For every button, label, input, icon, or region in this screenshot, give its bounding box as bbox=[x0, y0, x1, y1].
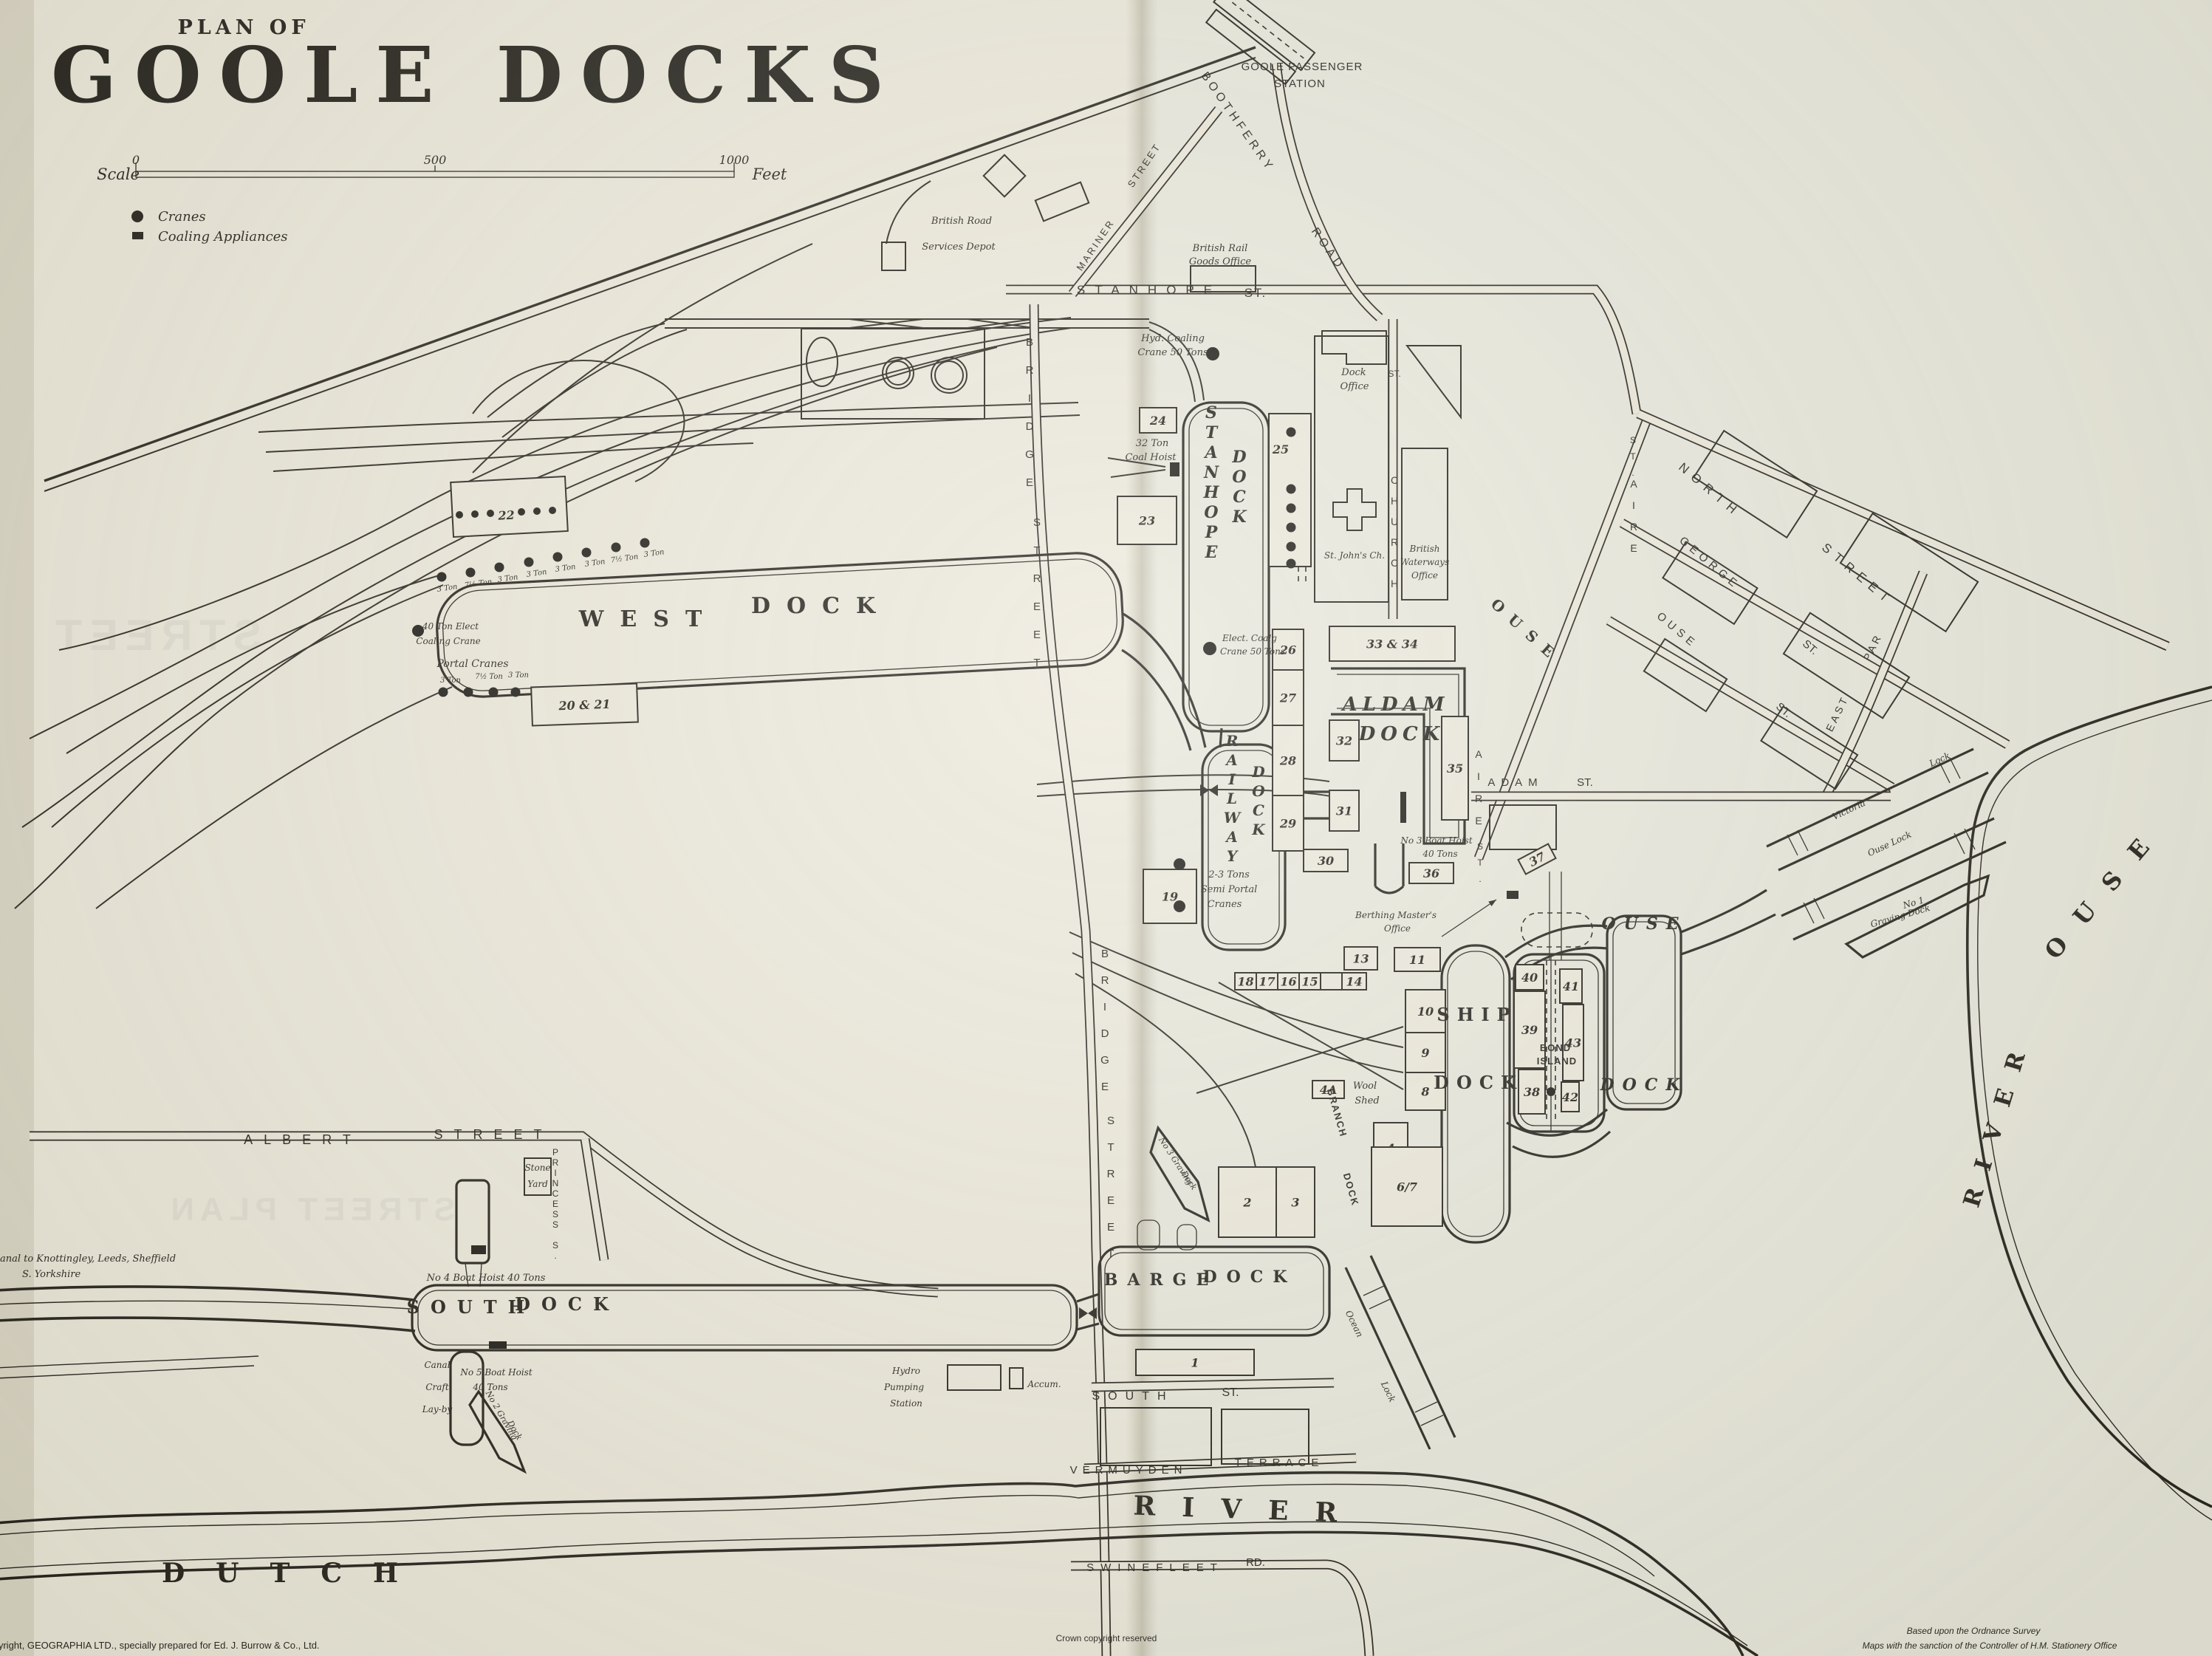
shed-28: 28 bbox=[1273, 725, 1304, 796]
shed-number: 27 bbox=[1279, 691, 1296, 705]
hydro-building bbox=[948, 1365, 1001, 1390]
crane-dot bbox=[553, 552, 563, 562]
brs-depot-building bbox=[882, 242, 905, 270]
label-ousedock-2: DOCK bbox=[1600, 1075, 1688, 1095]
coaling-square-icon bbox=[132, 232, 143, 239]
crane-dot bbox=[439, 688, 448, 697]
shed-number: 13 bbox=[1352, 952, 1369, 966]
label-stanhope-st: STANHOPE bbox=[1077, 283, 1222, 297]
crane-dot bbox=[1174, 858, 1185, 870]
crane-dot bbox=[511, 688, 521, 697]
shed-number: 32 bbox=[1336, 734, 1352, 748]
label-ton: 3 Ton bbox=[440, 677, 461, 685]
crane-dot bbox=[582, 548, 592, 558]
label-40ton-2: Coaling Crane bbox=[416, 636, 480, 646]
map-page: STREETSTREET PLAN bbox=[0, 0, 2212, 1656]
shed-9: 9 bbox=[1405, 1033, 1445, 1072]
scale-tick-1000: 1000 bbox=[719, 153, 750, 167]
label-albert-street: STREET bbox=[434, 1127, 552, 1142]
shed-number: 1 bbox=[1191, 1356, 1199, 1370]
crane-dot bbox=[1287, 559, 1296, 569]
legend-coaling: Coaling Appliances bbox=[158, 229, 288, 244]
label-bond: BOND bbox=[1540, 1042, 1571, 1053]
label-hydro-2: Pumping bbox=[883, 1382, 924, 1392]
shed-number: 39 bbox=[1521, 1023, 1538, 1037]
shed-3: 3 bbox=[1276, 1167, 1315, 1237]
shed-number: 22 bbox=[497, 508, 515, 523]
label-dock-office-1: Dock bbox=[1340, 367, 1366, 378]
berthing-masters-office bbox=[1507, 891, 1518, 899]
no4-boat-hoist bbox=[471, 1245, 486, 1254]
label-terrace: TERRACE bbox=[1235, 1457, 1324, 1469]
crane-dot bbox=[533, 507, 541, 515]
shed-1: 1 bbox=[1136, 1349, 1254, 1375]
crane-dot bbox=[437, 572, 447, 582]
label-layby-1: Canal bbox=[424, 1360, 450, 1370]
crane-dot bbox=[549, 507, 556, 514]
shed-number: 9 bbox=[1421, 1046, 1429, 1060]
street-south bbox=[1092, 1383, 1334, 1387]
shed-number: 38 bbox=[1524, 1085, 1540, 1099]
label-church-st2: ST. bbox=[1388, 369, 1400, 379]
crane-dot bbox=[1287, 542, 1296, 552]
scale-label: Scale bbox=[97, 165, 140, 183]
label-ton: 3 Ton bbox=[584, 558, 606, 569]
shed-number: 41 bbox=[1563, 979, 1579, 993]
label-no4-hoist: No 4 Boat Hoist 40 Tons bbox=[426, 1273, 546, 1284]
no5-boat-hoist bbox=[489, 1341, 507, 1349]
label-station: STATION bbox=[1274, 78, 1326, 90]
label-bridge-s2: STREET bbox=[1107, 1115, 1115, 1260]
shed-number: 2 bbox=[1242, 1196, 1251, 1210]
shed-number: 18 bbox=[1237, 975, 1253, 989]
label-south-st-1: SOUTH bbox=[1092, 1390, 1174, 1403]
coal-hoist-32ton bbox=[1170, 462, 1179, 476]
label-adam-st: ST. bbox=[1577, 776, 1593, 789]
shed-number: 35 bbox=[1447, 762, 1463, 776]
label-hyd-coaling-1: Hyd. Coaling bbox=[1140, 333, 1205, 344]
label-island: ISLAND bbox=[1537, 1055, 1577, 1067]
label-40ton-1: 40 Ton Elect bbox=[422, 621, 479, 632]
no3-boat-hoist bbox=[1400, 792, 1406, 823]
shed-17: 17 bbox=[1256, 973, 1278, 990]
shed-number: 6/7 bbox=[1397, 1180, 1417, 1194]
crane-dot bbox=[518, 508, 525, 516]
ghost-street-plan: STREET PLAN bbox=[165, 1191, 456, 1228]
label-no3-hoist-2: 40 Tons bbox=[1422, 849, 1457, 859]
scale-unit: Feet bbox=[752, 165, 787, 183]
shed-number: 29 bbox=[1279, 817, 1296, 831]
label-br-goods-1: British Rail bbox=[1192, 243, 1248, 254]
crane-dot bbox=[456, 511, 463, 519]
shed-number: 23 bbox=[1138, 514, 1155, 528]
shed-number: 17 bbox=[1259, 975, 1275, 989]
scale-tick-500: 500 bbox=[424, 153, 447, 167]
crane-dot bbox=[495, 563, 504, 572]
shed-13: 13 bbox=[1344, 947, 1377, 970]
label-os-2: Maps with the sanction of the Controller… bbox=[1863, 1640, 2117, 1651]
shed-30: 30 bbox=[1304, 849, 1348, 872]
shed-36: 36 bbox=[1409, 863, 1453, 883]
shed-24: 24 bbox=[1140, 408, 1177, 433]
shed-20 & 21: 20 & 21 bbox=[531, 684, 638, 726]
label-west-1: WEST bbox=[578, 606, 719, 632]
label-ousedock-1: OUSE bbox=[1601, 914, 1686, 934]
label-hydro-1: Hydro bbox=[891, 1366, 920, 1376]
canal-craft-layby bbox=[451, 1352, 483, 1445]
shed-number: 8 bbox=[1420, 1085, 1429, 1099]
shed-number: 24 bbox=[1149, 414, 1166, 428]
crane-dot bbox=[489, 688, 499, 697]
label-brs-2: Services Depot bbox=[922, 242, 996, 253]
canal-bank-1 bbox=[0, 1287, 414, 1300]
label-dock-office-2: Office bbox=[1340, 381, 1369, 392]
crane-dot bbox=[524, 558, 534, 567]
shed-number: 28 bbox=[1279, 754, 1296, 768]
map-title: GOOLE DOCKS bbox=[51, 30, 902, 120]
shed-15: 15 bbox=[1299, 973, 1321, 990]
label-layby-3: Lay-by bbox=[422, 1404, 453, 1414]
shed-23: 23 bbox=[1117, 496, 1177, 544]
label-wool-1: Wool bbox=[1353, 1081, 1377, 1092]
label-wool-2: Shed bbox=[1355, 1095, 1379, 1106]
label-canal-1: Canal to Knottingley, Leeds, Sheffield bbox=[0, 1253, 176, 1265]
label-west-2: DOCK bbox=[751, 593, 891, 619]
street-princess bbox=[585, 1139, 604, 1260]
label-ton: 3 Ton bbox=[555, 563, 576, 574]
label-semi-portal-1: 2-3 Tons bbox=[1208, 869, 1250, 880]
crane-dot bbox=[471, 510, 479, 518]
label-ton: 7½ Ton bbox=[475, 673, 503, 681]
label-hydro-3: Station bbox=[890, 1398, 922, 1409]
crane-dot bbox=[1203, 642, 1216, 655]
shed-35: 35 bbox=[1442, 716, 1468, 820]
shed-32: 32 bbox=[1329, 720, 1359, 761]
label-south-2: DOCK bbox=[515, 1293, 620, 1315]
label-stanhope-dock-2: DOCK bbox=[1231, 448, 1247, 527]
label-bw-3: Office bbox=[1411, 570, 1438, 581]
shed-number: 3 bbox=[1291, 1196, 1299, 1210]
shed-40: 40 bbox=[1516, 965, 1544, 990]
shed-29: 29 bbox=[1273, 796, 1304, 851]
label-barge-1: BARGE bbox=[1104, 1270, 1219, 1290]
legend-cranes: Cranes bbox=[158, 209, 206, 225]
shed-14: 14 bbox=[1342, 973, 1366, 990]
label-ship-2: DOCK bbox=[1434, 1072, 1524, 1093]
label-ton: 3 Ton bbox=[508, 671, 529, 680]
label-no5-hoist-1: No 5 Boat Hoist bbox=[459, 1367, 533, 1378]
shed-number: 31 bbox=[1336, 804, 1352, 818]
shed-33 & 34: 33 & 34 bbox=[1329, 626, 1455, 661]
goole-docks-map: STREETSTREET PLAN bbox=[0, 0, 2212, 1656]
label-barge-2: DOCK bbox=[1203, 1267, 1297, 1287]
crane-dot bbox=[1547, 1087, 1555, 1096]
scale-tick-0: 0 bbox=[132, 153, 140, 167]
crane-dot bbox=[466, 568, 476, 578]
label-semi-portal-3: Cranes bbox=[1208, 899, 1242, 910]
shed-number: 42 bbox=[1562, 1090, 1578, 1104]
label-dutch: DUTCH bbox=[162, 1558, 429, 1589]
label-albert: ALBERT bbox=[244, 1132, 362, 1147]
shed-number: 16 bbox=[1280, 975, 1296, 989]
label-ship-1: SHIP bbox=[1437, 1004, 1517, 1025]
label-elect-coalg-2: Crane 50 Tons bbox=[1220, 646, 1285, 657]
label-br-goods-2: Goods Office bbox=[1189, 256, 1251, 267]
label-crown: Crown copyright reserved bbox=[1056, 1633, 1157, 1643]
label-elect-coalg-1: Elect. Coalg bbox=[1222, 633, 1277, 643]
crane-dot bbox=[1287, 523, 1296, 533]
left-edge-shadow bbox=[0, 0, 34, 1656]
label-adam: ADAM bbox=[1487, 776, 1543, 789]
label-stone-1: Stone bbox=[524, 1163, 550, 1173]
tank-compound bbox=[801, 329, 985, 419]
label-no3-hoist-1: No 3 Boat Hoist bbox=[1400, 835, 1473, 846]
label-copyright: Copyright, GEOGRAPHIA LTD., specially pr… bbox=[0, 1640, 320, 1651]
crane-dot-icon bbox=[131, 211, 143, 222]
label-ton: 7½ Ton bbox=[610, 552, 639, 564]
shed-number: 10 bbox=[1417, 1005, 1434, 1019]
shed-blank bbox=[1321, 973, 1342, 990]
label-stanhope-dock-1: STANHOPE bbox=[1203, 403, 1220, 562]
shed-number: 19 bbox=[1162, 890, 1178, 904]
crane-dot bbox=[612, 543, 621, 552]
label-princess: PRINCESS S. bbox=[552, 1147, 559, 1261]
label-32ton-2: Coal Hoist bbox=[1125, 452, 1177, 463]
label-hyd-coaling-2: Crane 50 Tons bbox=[1137, 347, 1208, 358]
label-brs-1: British Road bbox=[931, 216, 992, 227]
shed-number: 36 bbox=[1423, 866, 1439, 880]
shed-number: 30 bbox=[1318, 854, 1334, 868]
shed-18: 18 bbox=[1235, 973, 1256, 990]
legend-symbols bbox=[131, 211, 143, 239]
label-32ton-1: 32 Ton bbox=[1136, 438, 1169, 449]
label-ton: 7½ Ton bbox=[464, 578, 493, 589]
shed-41: 41 bbox=[1560, 969, 1582, 1003]
label-layby-2: Craft bbox=[425, 1382, 449, 1392]
crane-dot bbox=[1287, 485, 1296, 494]
label-st-johns: St. John's Ch. bbox=[1324, 550, 1385, 561]
shed-6/7: 6/7 bbox=[1372, 1147, 1442, 1226]
shed-number: 20 & 21 bbox=[558, 697, 611, 713]
crane-dot bbox=[487, 510, 494, 517]
label-south-st-2: ST. bbox=[1222, 1386, 1239, 1399]
label-bw-2: Waterways bbox=[1400, 557, 1449, 567]
shed-number: 11 bbox=[1409, 953, 1425, 967]
label-berthing-1: Berthing Master's bbox=[1355, 910, 1437, 920]
swing-bridge-bowtie-2 bbox=[1079, 1307, 1097, 1319]
shed-number: 40 bbox=[1521, 971, 1538, 985]
label-accum: Accum. bbox=[1027, 1379, 1061, 1389]
label-swinefleet-rd: RD. bbox=[1246, 1556, 1265, 1569]
label-canal-2: S. Yorkshire bbox=[22, 1269, 81, 1280]
label-aldam-1: ALDAM bbox=[1340, 694, 1450, 716]
shed-19: 19 bbox=[1143, 869, 1196, 923]
crane-dot bbox=[464, 688, 473, 697]
label-semi-portal-2: Semi Portal bbox=[1201, 884, 1258, 895]
building-mariner bbox=[1035, 182, 1089, 222]
label-stone-2: Yard bbox=[527, 1179, 548, 1189]
label-portal-cranes: Portal Cranes bbox=[436, 658, 508, 670]
shed-number: 25 bbox=[1272, 442, 1289, 456]
shed-31: 31 bbox=[1329, 790, 1359, 831]
shed-number: 33 & 34 bbox=[1366, 637, 1418, 651]
shed-number: 14 bbox=[1346, 975, 1362, 989]
accumulator-building bbox=[1010, 1368, 1023, 1389]
crane-dot bbox=[1287, 428, 1296, 437]
shed-42: 42 bbox=[1561, 1082, 1579, 1112]
shed-22: 22 bbox=[451, 476, 568, 537]
shed-11: 11 bbox=[1394, 948, 1440, 971]
label-berthing-2: Office bbox=[1384, 923, 1411, 934]
shed-number: 15 bbox=[1301, 975, 1318, 989]
label-swinefleet: SWINEFLEET bbox=[1086, 1561, 1224, 1574]
crane-dot bbox=[1287, 504, 1296, 513]
crane-dot bbox=[640, 538, 650, 548]
label-bw-1: British bbox=[1409, 544, 1440, 554]
label-ton: 3 Ton bbox=[526, 568, 547, 579]
building-diamond bbox=[984, 155, 1026, 197]
label-aldam-2: DOCK bbox=[1358, 723, 1445, 745]
label-stanhope-st2: ST. bbox=[1244, 286, 1267, 300]
label-goole-passenger: GOOLE PASSENGER bbox=[1242, 61, 1363, 73]
crane-dot bbox=[1206, 347, 1219, 360]
label-os-1: Based upon the Ordnance Survey bbox=[1907, 1626, 2041, 1636]
shed-2: 2 bbox=[1219, 1167, 1276, 1237]
label-ton: 3 Ton bbox=[643, 548, 665, 559]
canal-bank-2 bbox=[0, 1318, 415, 1331]
shed-27: 27 bbox=[1273, 670, 1304, 725]
label-vermuyden: VERMUYDEN bbox=[1070, 1464, 1188, 1477]
street-bridge bbox=[1034, 304, 1106, 1656]
crane-dot bbox=[1174, 900, 1185, 912]
shed-16: 16 bbox=[1278, 973, 1299, 990]
